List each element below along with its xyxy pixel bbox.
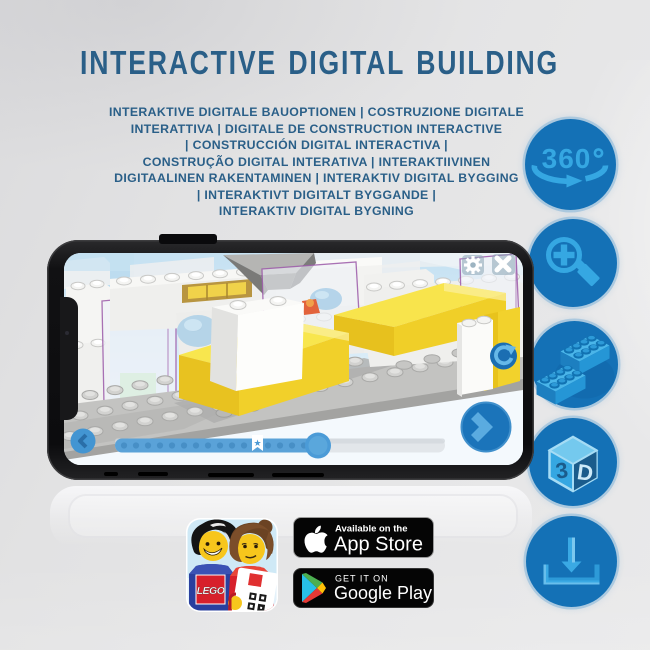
svg-text:★: ★ xyxy=(253,438,261,448)
svg-text:GET IT ON: GET IT ON xyxy=(335,574,389,584)
svg-text:360: 360 xyxy=(542,143,592,174)
svg-text:D: D xyxy=(576,459,595,486)
svg-text:App Store: App Store xyxy=(334,534,423,556)
svg-text:Google Play: Google Play xyxy=(334,583,432,603)
svg-text:LEGO: LEGO xyxy=(197,585,225,597)
